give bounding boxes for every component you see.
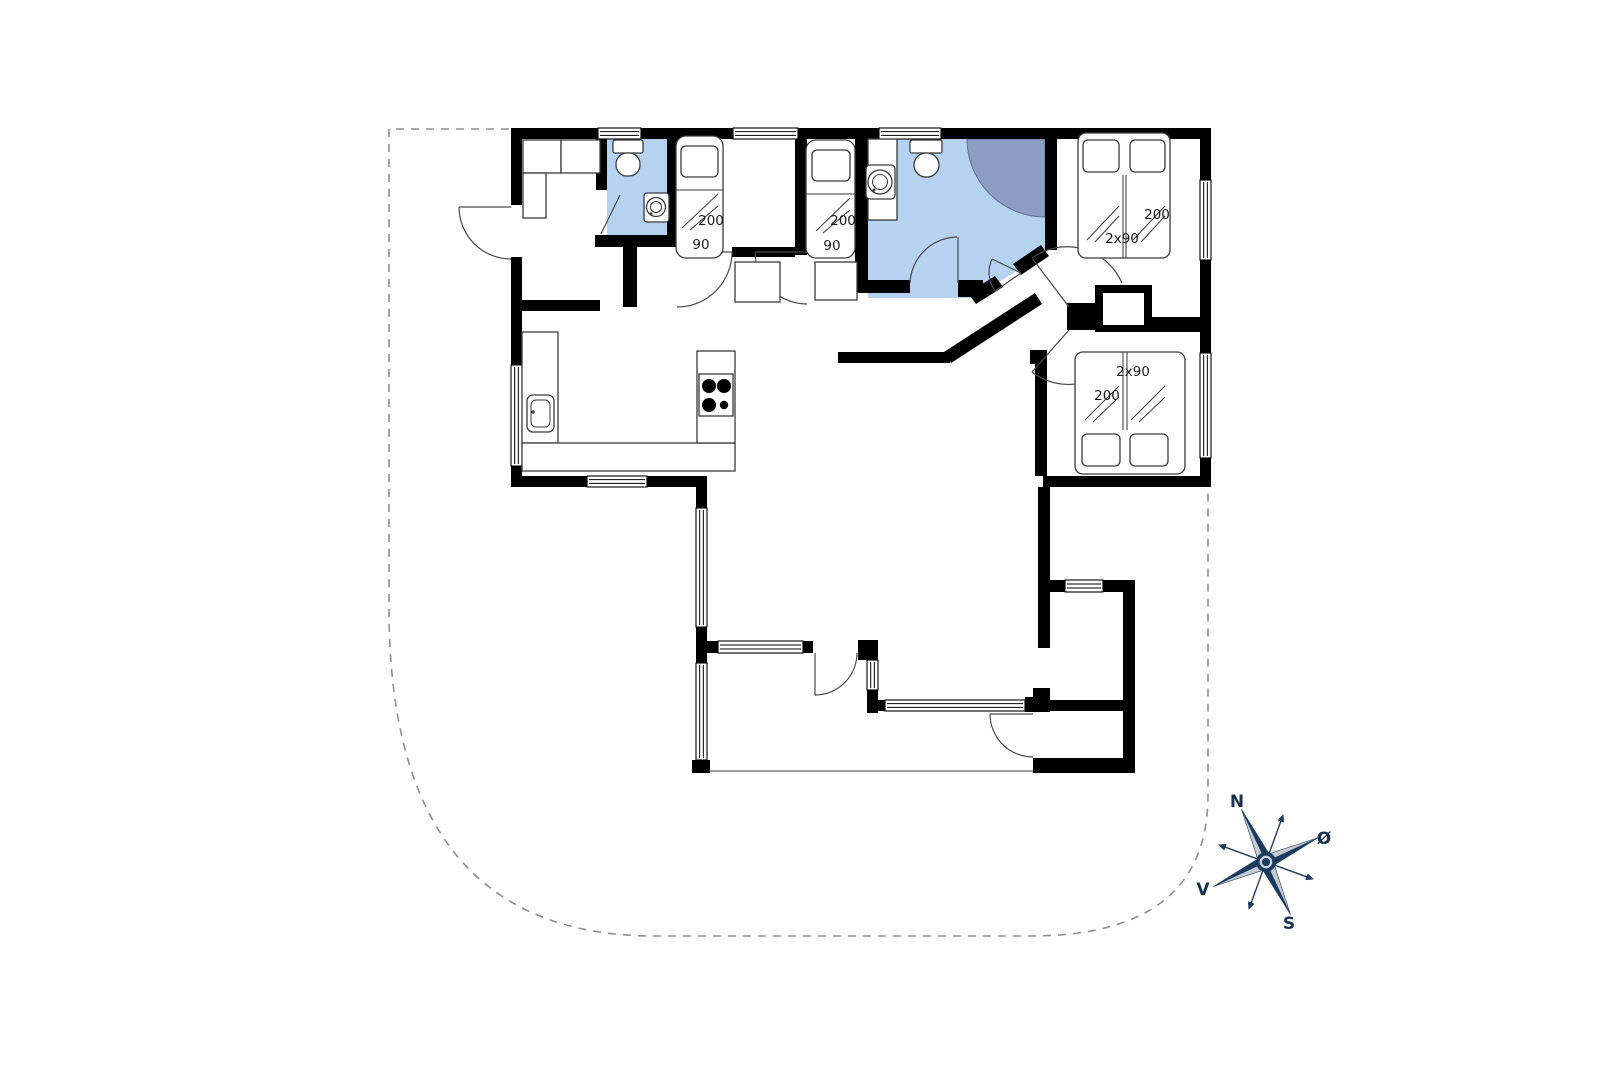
bed-width-label: 90 — [823, 238, 840, 254]
window-icon — [598, 128, 641, 139]
wall-segment — [795, 128, 807, 255]
window-icon — [718, 641, 803, 653]
window-icon — [696, 663, 707, 760]
floor-plan-page: 200 90 200 90 200 2x90 2x90 200 — [0, 0, 1600, 1066]
wall-segment — [877, 700, 885, 711]
kitchen-sink-icon — [527, 395, 554, 432]
wall-segment — [595, 235, 668, 247]
wall-segment — [1200, 260, 1211, 353]
wall-segment — [696, 627, 707, 663]
bedroom2-bed: 200 90 — [806, 140, 856, 258]
wall-segment — [1033, 758, 1135, 773]
window-icon — [1200, 180, 1211, 260]
bed-width-label: 2x90 — [1116, 364, 1150, 380]
wall-segment — [838, 352, 950, 363]
bed-length-label: 200 — [1144, 207, 1170, 223]
window-icon — [587, 476, 647, 487]
bed-width-label: 2x90 — [1105, 231, 1139, 247]
wall-segment — [1095, 285, 1152, 293]
wall-segment — [868, 280, 910, 293]
wall-segment — [1200, 128, 1211, 180]
bed-width-label: 90 — [692, 237, 709, 253]
sink-icon — [866, 165, 895, 199]
bed-length-label: 200 — [830, 213, 856, 229]
bed-length-label: 200 — [1094, 388, 1120, 404]
compass-east-label: Ø — [1317, 829, 1331, 849]
wall-segment — [867, 690, 878, 713]
compass-rose: N Ø S V — [1189, 785, 1343, 939]
window-icon — [1065, 580, 1103, 592]
bed-length-label: 200 — [698, 213, 724, 229]
stove-icon — [699, 374, 733, 416]
wall-segment — [1035, 352, 1047, 476]
wall-segment — [1095, 325, 1152, 332]
kitchen-counter-south — [522, 443, 735, 471]
wall-segment — [518, 300, 600, 311]
compass-west-label: V — [1196, 880, 1210, 900]
wall-segment — [647, 476, 707, 487]
wall-segment — [1038, 487, 1050, 648]
wall-segment — [1045, 128, 1057, 250]
wall-segment — [623, 247, 637, 307]
wall-segment — [941, 128, 1211, 139]
entrance-wardrobe — [523, 140, 600, 218]
terrace-door — [815, 653, 857, 695]
window-icon — [1200, 353, 1211, 458]
window-icon — [867, 660, 878, 690]
kitchen — [522, 332, 735, 471]
wall-segment — [803, 641, 813, 653]
bedroom1-door — [677, 252, 732, 307]
bedroom4-double-bed: 2x90 200 — [1075, 352, 1185, 474]
wall-segment — [511, 128, 522, 205]
entrance-door — [459, 207, 511, 259]
window-icon — [879, 128, 941, 139]
sink-icon — [644, 193, 669, 222]
wall-segment — [1043, 476, 1211, 487]
wall-segment — [1033, 688, 1050, 712]
wall-segment — [1123, 580, 1135, 773]
wall-segment — [1050, 580, 1065, 592]
bedroom1-bed: 200 90 — [676, 136, 724, 258]
wall-segment — [511, 476, 587, 487]
compass-north-label: N — [1230, 792, 1244, 812]
window-icon — [885, 700, 1025, 711]
wall-segment — [1048, 700, 1123, 711]
window-icon — [696, 508, 707, 627]
compass-south-label: S — [1283, 914, 1295, 934]
bedroom-closets — [735, 262, 857, 302]
storage-door — [990, 714, 1033, 757]
wall-segment — [511, 128, 598, 139]
wall-segment — [1152, 317, 1200, 332]
wall-segment — [707, 641, 718, 653]
floor-plan-drawing: 200 90 200 90 200 2x90 2x90 200 — [0, 0, 1600, 1066]
wall-segment — [1067, 303, 1097, 330]
window-icon — [733, 128, 798, 139]
bedroom3-double-bed: 200 2x90 — [1078, 133, 1170, 258]
window-icon — [511, 365, 522, 466]
wall-segment — [696, 487, 707, 508]
wall-segment — [858, 640, 878, 660]
toilet-icon — [613, 140, 643, 176]
